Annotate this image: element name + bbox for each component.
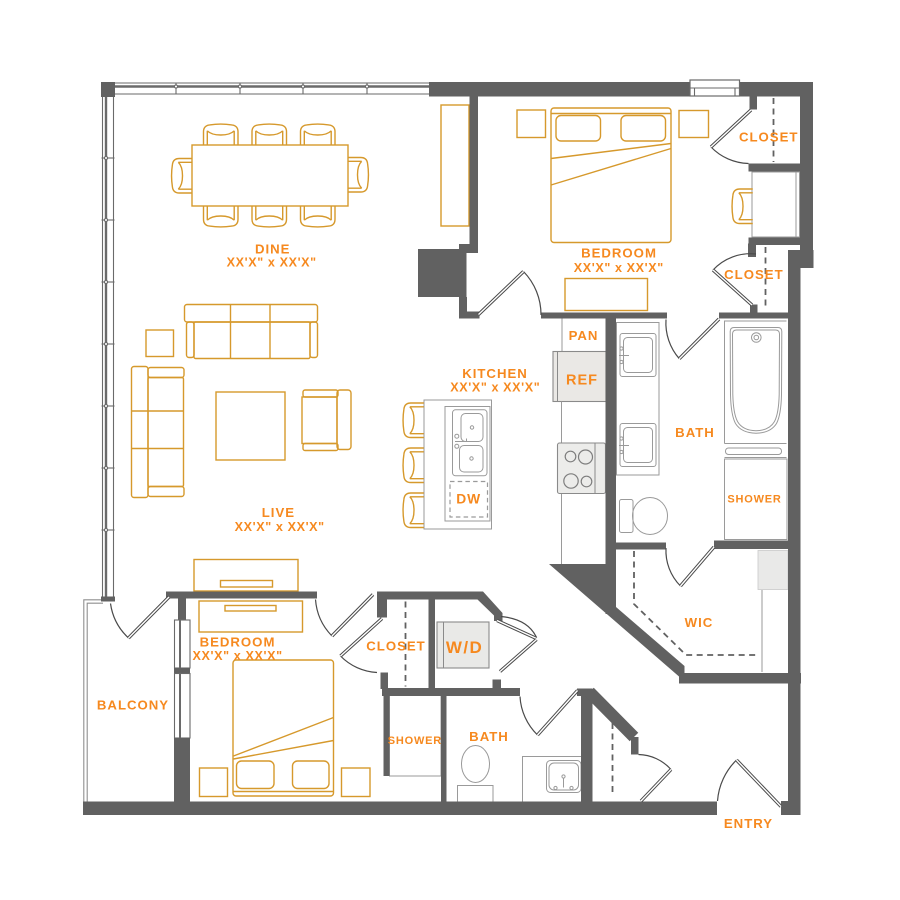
svg-text:SHOWER: SHOWER xyxy=(727,494,781,506)
svg-text:XX'X" x XX'X": XX'X" x XX'X" xyxy=(227,256,317,270)
svg-text:KITCHEN: KITCHEN xyxy=(462,366,528,381)
svg-text:BALCONY: BALCONY xyxy=(97,698,169,713)
svg-text:CLOSET: CLOSET xyxy=(724,267,783,282)
svg-text:BEDROOM: BEDROOM xyxy=(200,635,276,650)
svg-text:REF: REF xyxy=(566,373,598,389)
svg-text:BATH: BATH xyxy=(675,425,715,440)
svg-text:LIVE: LIVE xyxy=(262,505,295,520)
svg-text:CLOSET: CLOSET xyxy=(739,130,798,145)
svg-text:XX'X" x XX'X": XX'X" x XX'X" xyxy=(193,649,283,663)
svg-text:XX'X" x XX'X": XX'X" x XX'X" xyxy=(235,520,325,534)
svg-text:ENTRY: ENTRY xyxy=(724,816,773,831)
svg-text:PAN: PAN xyxy=(569,328,599,343)
svg-text:XX'X" x XX'X": XX'X" x XX'X" xyxy=(574,261,664,275)
svg-text:DW: DW xyxy=(456,492,481,507)
svg-text:WIC: WIC xyxy=(685,615,714,630)
svg-text:W/D: W/D xyxy=(446,638,483,657)
svg-text:XX'X" x XX'X": XX'X" x XX'X" xyxy=(450,381,540,395)
svg-text:SHOWER: SHOWER xyxy=(388,735,442,747)
svg-text:BEDROOM: BEDROOM xyxy=(581,246,657,261)
svg-text:BATH: BATH xyxy=(469,729,509,744)
svg-text:CLOSET: CLOSET xyxy=(366,639,425,654)
svg-text:DINE: DINE xyxy=(255,242,291,257)
